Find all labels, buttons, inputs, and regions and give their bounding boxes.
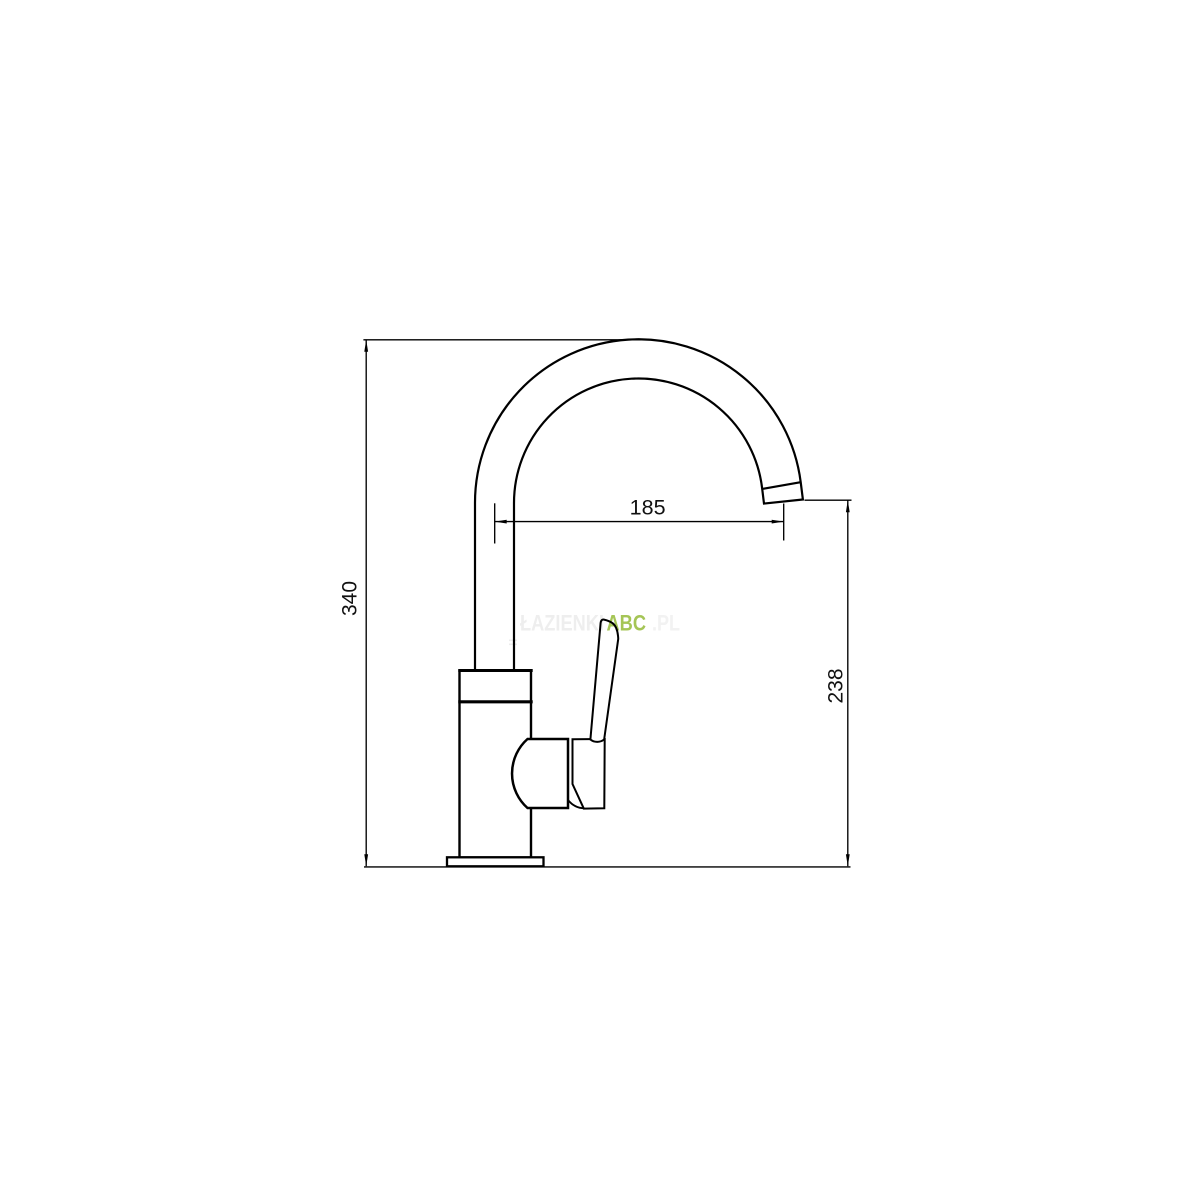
svg-text:238: 238 — [824, 668, 847, 703]
svg-text:ABC: ABC — [607, 611, 647, 636]
svg-text:ŁAZIENKI: ŁAZIENKI — [520, 611, 604, 636]
svg-text:340: 340 — [339, 581, 362, 616]
svg-text:.PL: .PL — [652, 611, 680, 636]
svg-text:185: 185 — [630, 496, 666, 520]
